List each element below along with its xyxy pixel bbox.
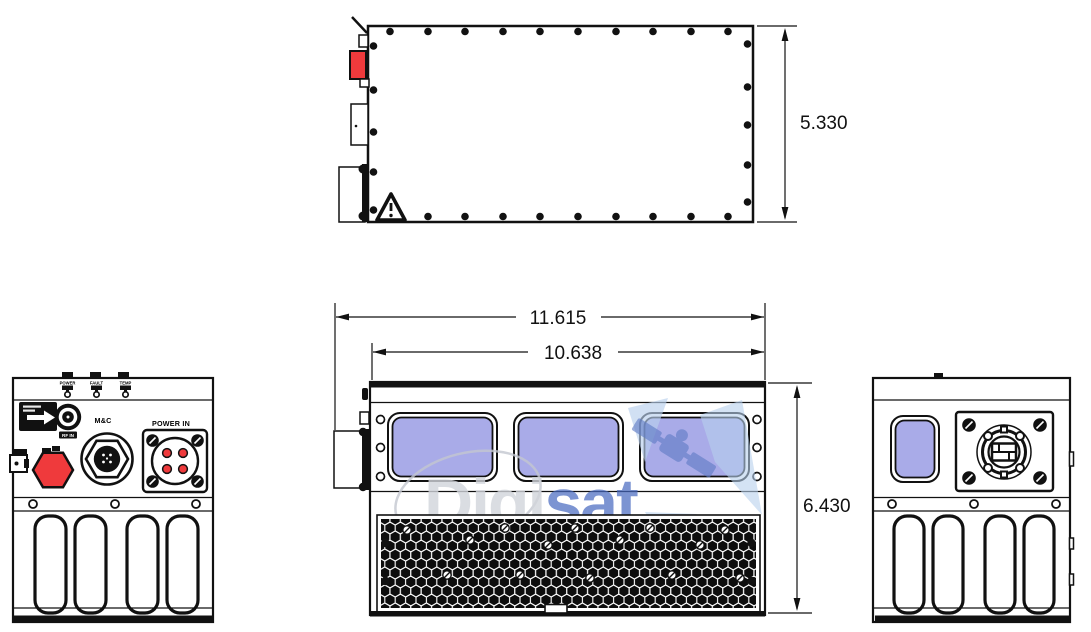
dimension-front-height: 6.430 — [803, 496, 851, 517]
small-tab — [359, 35, 368, 47]
mc-label: M&C — [95, 416, 112, 425]
honeycomb-vent — [381, 519, 756, 608]
dimension-drawing: 5.330 — [0, 0, 1091, 632]
top-view: 5.330 — [339, 17, 848, 222]
dimension-top-depth: 5.330 — [800, 113, 848, 134]
dimension-5-330 — [757, 26, 797, 222]
dimension-body-width: 10.638 — [544, 343, 602, 364]
dimension-overall-width: 11.615 — [530, 308, 587, 329]
side-terminal — [10, 449, 29, 472]
power-in-label: POWER IN — [152, 419, 190, 428]
drawing-canvas: 5.330 — [0, 0, 1091, 632]
front-left-connector — [334, 388, 369, 491]
led-label-power: POWER — [60, 381, 76, 386]
led-label-temp: TEMP — [120, 381, 132, 386]
rf-label-plate — [19, 402, 57, 431]
red-connector-cap-top — [350, 51, 366, 79]
front-vent — [370, 515, 765, 617]
latch-whisker — [352, 17, 367, 33]
right-window — [891, 416, 939, 482]
left-end-view: POWER FAULT TEMP RF IN — [10, 372, 213, 622]
power-in-connector: POWER IN — [143, 419, 207, 492]
power-led — [65, 392, 70, 397]
right-end-view — [873, 373, 1074, 622]
small-tab — [360, 79, 369, 87]
led-label-fault: FAULT — [90, 381, 104, 386]
side-connector-top — [351, 104, 368, 145]
fault-led — [94, 392, 99, 397]
rf-connector-label: RF IN — [62, 433, 75, 438]
top-view-outline — [368, 26, 753, 222]
connector-flange-bar — [362, 164, 369, 222]
waveguide-flange — [956, 412, 1053, 491]
bottom-center-tab — [545, 605, 567, 614]
temp-led — [123, 392, 128, 397]
